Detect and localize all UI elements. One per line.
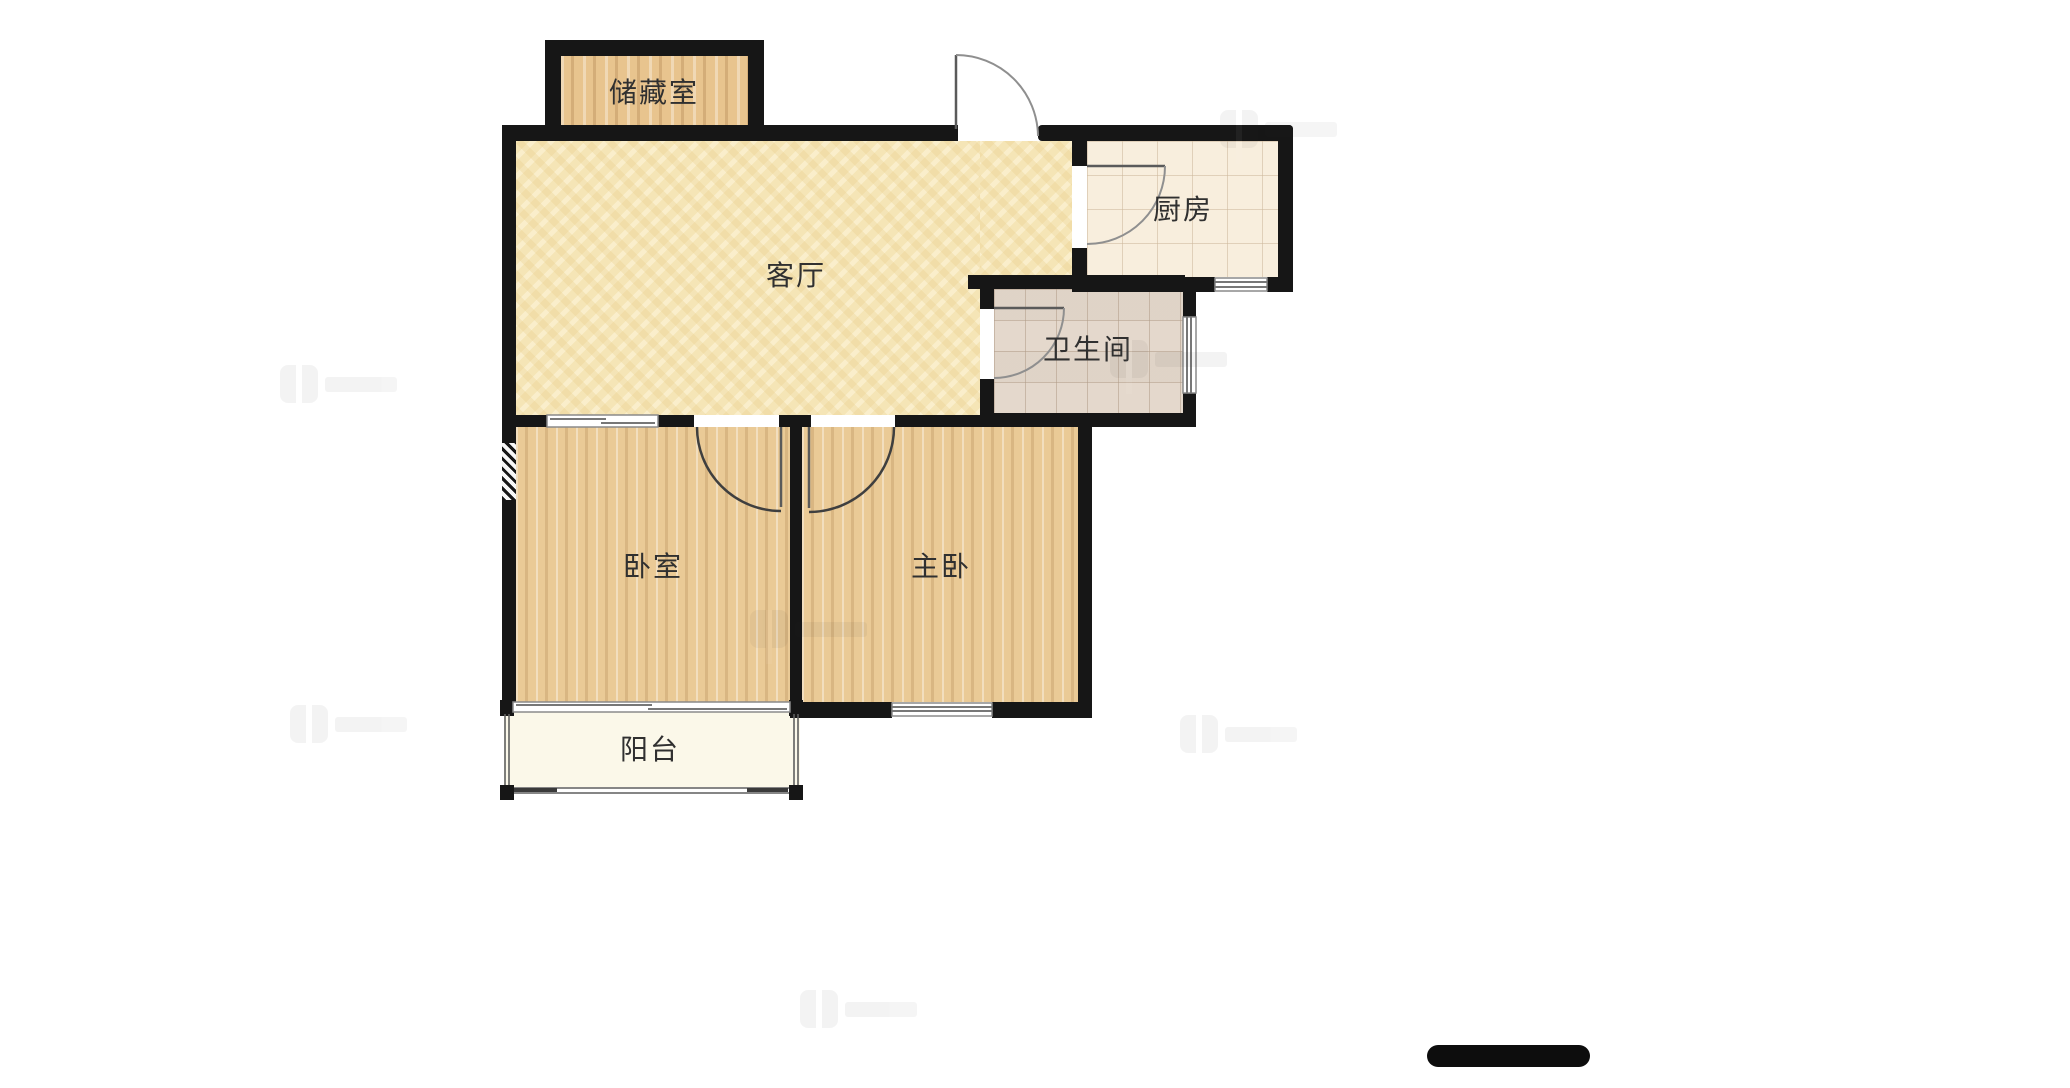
bedroom-door-swing (697, 427, 781, 511)
entry-door-swing (956, 55, 1038, 136)
watermark (800, 990, 917, 1028)
storage-room-label: 储藏室 (609, 71, 699, 111)
master-bedroom-label: 主卧 (911, 545, 971, 585)
watermark (290, 705, 407, 743)
master-bedroom-window (892, 703, 992, 716)
watermark (750, 610, 867, 648)
balcony-label: 阳台 (620, 728, 680, 768)
floor-plan-canvas: 储藏室 客厅 厨房 卫生间 卧室 主卧 阳台 (0, 0, 2070, 1088)
scale-bar (1427, 1045, 1590, 1067)
watermark (1180, 715, 1297, 753)
living-bedroom-window (547, 415, 658, 427)
watermark (1110, 340, 1227, 378)
watermark (1220, 110, 1337, 148)
kitchen-window (1215, 278, 1267, 291)
wall-duct-hatch (502, 443, 516, 500)
living-room-label: 客厅 (766, 254, 826, 294)
walls-and-symbols-layer (0, 0, 2070, 1088)
bedroom-label: 卧室 (623, 545, 683, 585)
master-bedroom-door-swing (809, 427, 894, 512)
watermark (280, 365, 397, 403)
balcony-slider-window (513, 702, 790, 712)
kitchen-label: 厨房 (1153, 188, 1213, 228)
